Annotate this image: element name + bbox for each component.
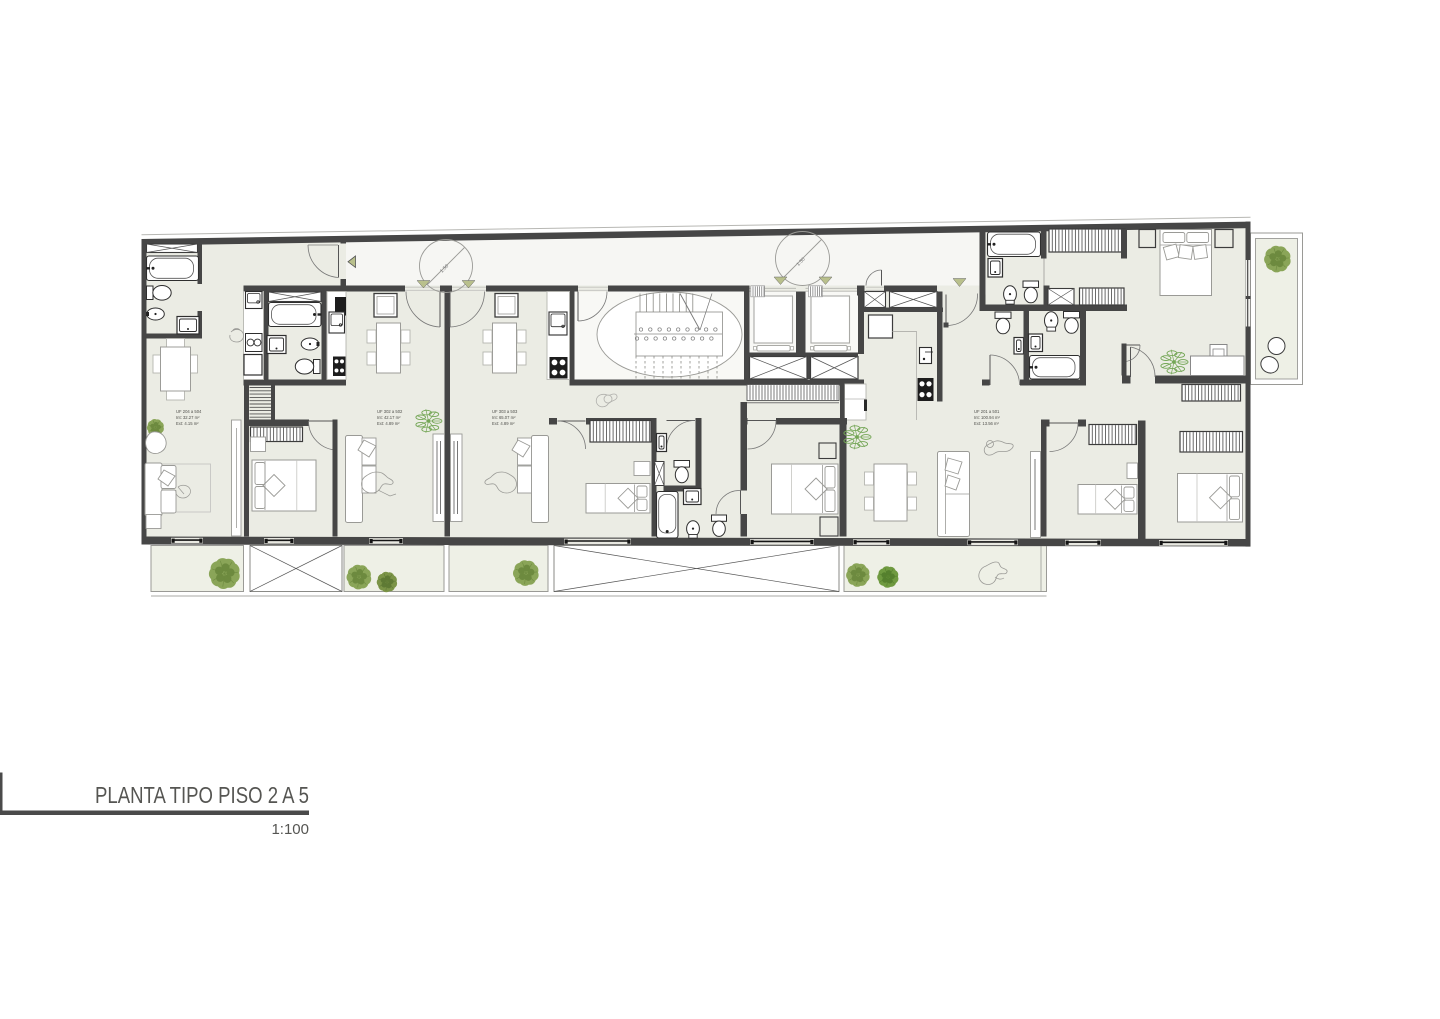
svg-text:PLANTA TIPO PISO 2 A 5: PLANTA TIPO PISO 2 A 5 [95,782,309,808]
svg-text:1:100: 1:100 [271,821,309,838]
svg-text:Int: 32.27 m²: Int: 32.27 m² [176,415,200,420]
svg-text:Ext: 4.89 m²: Ext: 4.89 m² [492,421,515,426]
svg-text:Int: 100.94 m²: Int: 100.94 m² [974,415,1000,420]
svg-text:Ext: 4.89 m²: Ext: 4.89 m² [377,421,400,426]
svg-text:Int: 42.17 m²: Int: 42.17 m² [377,415,401,420]
svg-text:Ext: 13.56 m²: Ext: 13.56 m² [974,421,1000,426]
svg-text:UF 303 a 503: UF 303 a 503 [492,409,518,414]
svg-text:Ext: 4.15 m²: Ext: 4.15 m² [176,421,199,426]
svg-text:UF 201 a 501: UF 201 a 501 [974,409,1000,414]
svg-text:UF 302 a 502: UF 302 a 502 [377,409,403,414]
svg-text:UF 204 a 504: UF 204 a 504 [176,409,202,414]
svg-text:Int: 65.07 m²: Int: 65.07 m² [492,415,516,420]
